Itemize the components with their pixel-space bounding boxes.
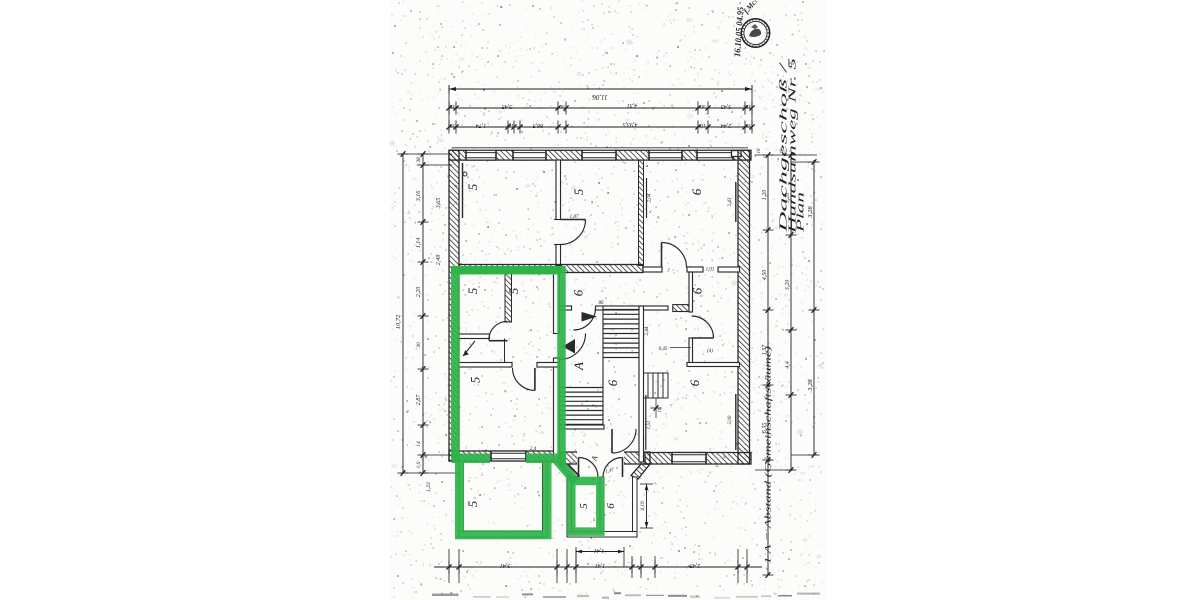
svg-text:10: 10 — [508, 122, 514, 128]
svg-text:38: 38 — [416, 157, 422, 164]
svg-text:30: 30 — [700, 103, 707, 109]
svg-text:86,5: 86,5 — [533, 122, 544, 128]
svg-text:3,41: 3,41 — [500, 562, 512, 569]
svg-text:3,28: 3,28 — [807, 379, 814, 392]
svg-text:1,41: 1,41 — [594, 547, 605, 554]
svg-text:1,0: 1,0 — [416, 461, 422, 468]
svg-text:5: 5 — [571, 188, 586, 195]
svg-text:18: 18 — [450, 103, 456, 109]
svg-text:1,74: 1,74 — [476, 122, 487, 129]
svg-text:3,16: 3,16 — [416, 191, 422, 203]
svg-text:2,49: 2,49 — [435, 255, 442, 266]
svg-text:4,4: 4,4 — [784, 361, 791, 369]
svg-text:6: 6 — [605, 503, 617, 509]
svg-text:2,45: 2,45 — [690, 562, 701, 569]
svg-text:1,87: 1,87 — [570, 215, 579, 220]
svg-text:3,43: 3,43 — [721, 103, 733, 110]
svg-text:4,93,5: 4,93,5 — [623, 121, 638, 128]
svg-text:2,44: 2,44 — [721, 122, 732, 129]
svg-text:1 A = Abstand (Gemeinschaftsrä: 1 A = Abstand (Gemeinschaftsräume) — [764, 345, 773, 564]
svg-text:4,50: 4,50 — [761, 270, 768, 281]
svg-text:14: 14 — [746, 122, 752, 129]
svg-text:1,01: 1,01 — [706, 268, 715, 273]
svg-text:5: 5 — [465, 500, 480, 507]
svg-text:3,28: 3,28 — [807, 206, 814, 219]
svg-text:5: 5 — [506, 287, 521, 294]
svg-text:10: 10 — [700, 122, 706, 128]
svg-text:14: 14 — [450, 122, 456, 129]
svg-text:5: 5 — [578, 503, 590, 509]
svg-text:86: 86 — [599, 301, 605, 306]
svg-text:3,20: 3,20 — [785, 280, 791, 292]
svg-text:5: 5 — [465, 287, 480, 294]
svg-text:16: 16 — [658, 407, 663, 413]
svg-text:1,41: 1,41 — [595, 562, 606, 569]
svg-text:2,04: 2,04 — [648, 193, 653, 202]
svg-text:2,00: 2,00 — [728, 415, 733, 424]
svg-text:1,51: 1,51 — [647, 421, 652, 430]
svg-text:2,43: 2,43 — [728, 197, 733, 206]
svg-text:10,72: 10,72 — [395, 314, 402, 329]
svg-text:A: A — [571, 362, 586, 371]
svg-text:(4): (4) — [707, 349, 713, 354]
svg-text:18: 18 — [757, 148, 762, 154]
svg-text:5: 5 — [468, 376, 483, 383]
svg-text:1,14: 1,14 — [415, 238, 422, 249]
svg-text:1,23: 1,23 — [426, 482, 432, 492]
svg-text:6: 6 — [687, 379, 702, 386]
svg-text:4,19: 4,19 — [639, 501, 646, 511]
svg-text:1,20: 1,20 — [762, 190, 768, 201]
svg-text:6: 6 — [689, 188, 704, 195]
svg-text:2,20: 2,20 — [416, 287, 422, 298]
svg-text:6: 6 — [571, 289, 586, 296]
svg-text:18: 18 — [746, 103, 752, 109]
svg-text:14: 14 — [415, 441, 422, 447]
svg-text:3,45: 3,45 — [502, 103, 514, 110]
svg-text:4,31: 4,31 — [627, 102, 638, 109]
svg-text:30: 30 — [559, 103, 566, 109]
svg-text:2,44: 2,44 — [645, 326, 650, 335]
svg-text:6: 6 — [605, 379, 620, 386]
svg-text:11,06: 11,06 — [592, 93, 608, 101]
svg-text:Plan: Plan — [796, 192, 807, 234]
svg-text:6: 6 — [690, 287, 705, 294]
svg-text:0,45: 0,45 — [659, 347, 668, 352]
svg-text:3,65: 3,65 — [436, 198, 442, 210]
svg-text:2,87: 2,87 — [416, 394, 422, 406]
svg-text:5: 5 — [465, 183, 480, 190]
svg-text:30: 30 — [416, 342, 422, 349]
svg-text:2,4: 2,4 — [530, 447, 537, 452]
